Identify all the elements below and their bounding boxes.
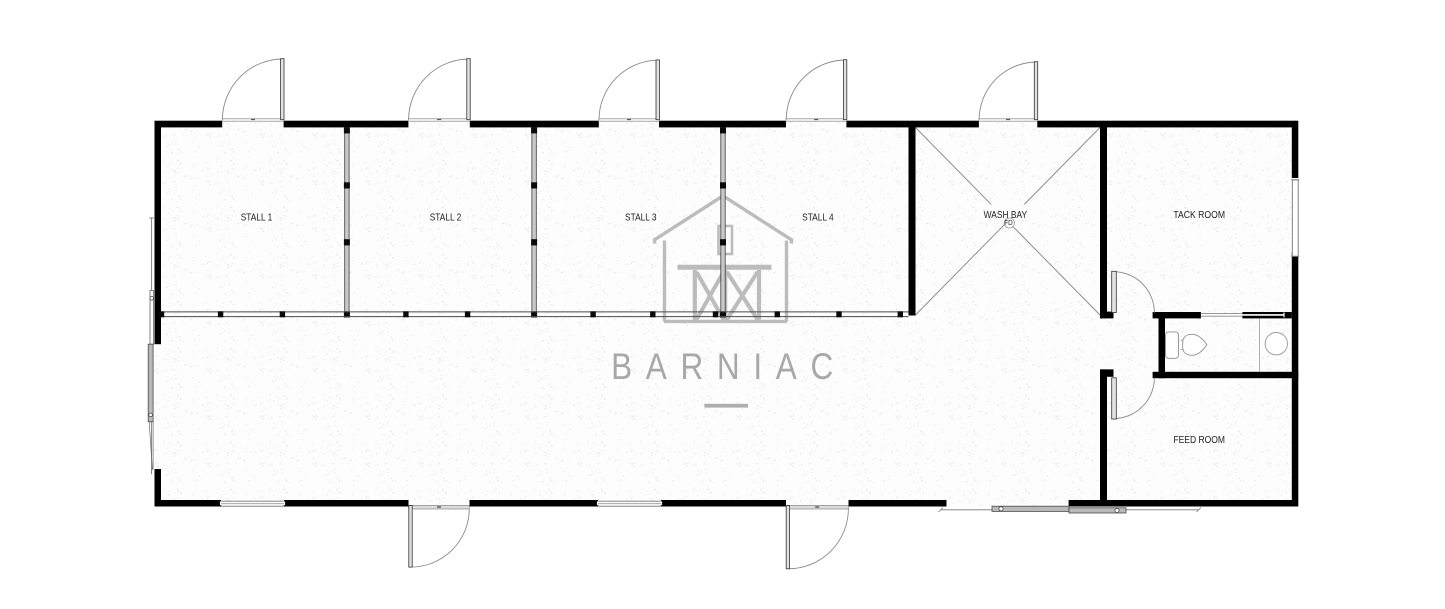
svg-text:STALL 2: STALL 2 [430,212,462,223]
svg-text:BARNIAC: BARNIAC [611,347,847,388]
svg-text:STALL 4: STALL 4 [802,212,834,223]
svg-text:FEED ROOM: FEED ROOM [1173,435,1225,446]
svg-text:STALL 1: STALL 1 [241,212,273,223]
svg-text:TACK ROOM: TACK ROOM [1173,210,1225,221]
svg-text:STALL 3: STALL 3 [625,212,657,223]
svg-text:FD: FD [1004,220,1013,227]
